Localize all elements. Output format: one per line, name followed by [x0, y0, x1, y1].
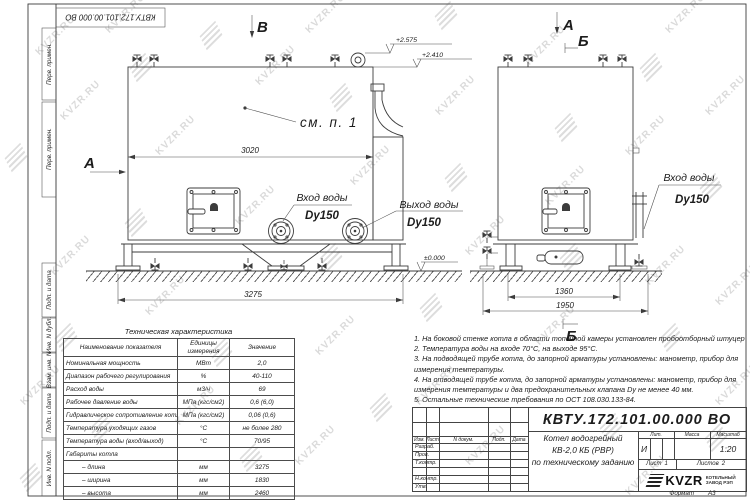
sig-row-label: Т.контр.	[413, 459, 441, 467]
spec-cell: МПа (кгс/см2)	[178, 396, 230, 409]
sheet-label: Лист	[646, 461, 661, 467]
spec-cell: %	[178, 370, 230, 383]
furnace-door-side	[187, 188, 240, 234]
elevation-top: +2.575	[396, 37, 417, 44]
sheets-value: 2	[722, 461, 725, 467]
spec-row: Габариты котла	[64, 448, 295, 461]
sig-row-label: Разраб.	[413, 443, 441, 451]
spec-cell: 2,0	[230, 357, 295, 370]
spec-cell: 0,6 (6,0)	[230, 396, 295, 409]
doc-number-top: КВТУ.172.101.00.000 ВО	[65, 13, 155, 22]
stamp-label: Инв. N подл.	[45, 450, 53, 487]
spec-cell: °С	[178, 422, 230, 435]
note-item: 4. На отводящей трубе котла, до запорной…	[414, 375, 746, 395]
dim-3275: 3275	[244, 290, 262, 299]
boiler-rear-annex	[373, 137, 403, 240]
title-block: КВТУ.172.101.00.000 ВО Изм. Лист N докум…	[412, 407, 747, 492]
stamp-label: Взам. инв. N	[46, 351, 53, 388]
stamp-label: Перв. примен.	[46, 128, 53, 170]
rev-header: N докум.	[439, 436, 488, 443]
company-logo: KVZR КОТЕЛЬНЫЙ ЗАВОД РЭП	[638, 469, 746, 491]
top-port	[351, 53, 365, 67]
spec-cell: Температура воды (вход/выход)	[64, 435, 178, 448]
stamp-label: Подп. и дата	[45, 270, 53, 310]
dim-1360: 1360	[555, 287, 573, 296]
spec-cell	[178, 448, 230, 461]
valve-icon	[331, 55, 340, 67]
spec-cell: 69	[230, 383, 295, 396]
spec-cell: мм	[178, 487, 230, 500]
spec-cell: 0,06 (0,6)	[230, 409, 295, 422]
company-line: ЗАВОД РЭП	[706, 480, 736, 485]
sheet-value: 1	[665, 461, 668, 467]
product-name: Котел водогрейный КВ-2,0 КБ (РВР) по тех…	[528, 431, 638, 469]
callout-label: см. п. 1	[300, 115, 358, 130]
outlet-label: Выход воды	[399, 199, 458, 211]
valve-icon	[599, 55, 608, 67]
spec-header-units: Единицы измерения	[178, 339, 230, 357]
support-frame-side	[116, 244, 408, 270]
spec-cell: – длина	[64, 461, 178, 474]
valve-icon	[133, 55, 142, 67]
kvzr-logo-text: KVZR	[665, 473, 702, 488]
spec-table: Техническая характеристика Наименование …	[63, 327, 294, 500]
format-value: А3	[708, 490, 716, 497]
spec-cell: 3275	[230, 461, 295, 474]
spec-cell: Диапазон рабочего регулирования	[64, 370, 178, 383]
burner-unit	[545, 251, 583, 264]
spec-cell: – ширина	[64, 474, 178, 487]
spec-header-name: Наименование показателя	[64, 339, 178, 357]
lit-value: И	[638, 438, 650, 459]
valve-icon	[618, 55, 627, 67]
dim-1950: 1950	[556, 301, 574, 310]
furnace-door-end	[542, 188, 590, 234]
spec-row: Гидравлическое сопротивление котлаМПа (к…	[64, 409, 295, 422]
drain-valve-icon	[151, 258, 160, 270]
view-label-a-right: А	[562, 17, 574, 34]
valve-icon	[504, 55, 513, 67]
rev-header: Подп.	[488, 436, 510, 443]
inlet-size: Dy150	[305, 210, 339, 222]
outlet-size: Dy150	[407, 217, 441, 229]
spec-cell: м3/ч	[178, 383, 230, 396]
spec-header-row: Наименование показателя Единицы измерени…	[64, 339, 295, 357]
spec-cell: – высота	[64, 487, 178, 500]
elevation-zero: ±0.000	[424, 255, 445, 262]
spec-cell: 70/95	[230, 435, 295, 448]
company-name: КОТЕЛЬНЫЙ ЗАВОД РЭП	[706, 475, 736, 486]
spec-cell: 2460	[230, 487, 295, 500]
scale-header: Масштаб	[710, 431, 746, 438]
spec-row: Температура воды (вход/выход)°С70/95	[64, 435, 295, 448]
inlet-size-end: Dy150	[675, 194, 709, 206]
spec-row: – высотамм2460	[64, 487, 295, 500]
spec-cell: МВт	[178, 357, 230, 370]
spec-cell: Номинальная мощность	[64, 357, 178, 370]
spec-row: Температура уходящих газов°Сне более 280	[64, 422, 295, 435]
sig-row-label: Пров.	[413, 451, 441, 459]
boiler-end-view	[470, 55, 662, 271]
note-item: 5. Остальные технические требования по О…	[414, 395, 746, 405]
inlet-flange	[269, 219, 294, 244]
spec-cell: Рабочее давление воды	[64, 396, 178, 409]
spec-cell: не более 280	[230, 422, 295, 435]
door-handle	[188, 209, 205, 214]
mass-header: Масса	[674, 431, 710, 438]
spec-cell: мм	[178, 461, 230, 474]
inlet-pipe-end	[632, 192, 647, 238]
spec-cell: Габариты котла	[64, 448, 178, 461]
view-label-a-left: А	[83, 155, 95, 172]
support-frame-end	[493, 244, 638, 270]
elevation-mid: +2.410	[422, 52, 443, 59]
drain-valve-icon	[280, 260, 287, 270]
scale-value: 1:20	[710, 438, 746, 459]
door-lock-icon	[210, 203, 218, 211]
spec-cell: мм	[178, 474, 230, 487]
spec-row: Расход водым3/ч69	[64, 383, 295, 396]
sig-row-label: Н.контр.	[413, 475, 441, 483]
flue-elbow	[371, 84, 403, 136]
rev-header: Лист	[426, 436, 439, 443]
spec-row: Диапазон рабочего регулирования%40-110	[64, 370, 295, 383]
spec-table-title: Техническая характеристика	[63, 327, 294, 336]
stamp-label: Подп. и дата	[45, 393, 53, 433]
product-name-line: по техническому заданию	[532, 456, 635, 468]
spec-cell: Гидравлическое сопротивление котла	[64, 409, 178, 422]
boiler-side-view	[86, 53, 462, 271]
technical-notes: 1. На боковой стенке котла в области топ…	[414, 334, 746, 405]
spec-row: – ширинамм1830	[64, 474, 295, 487]
sheet-cell: Лист 1	[638, 459, 676, 469]
stamp-label: Инв. N дубл.	[45, 317, 53, 353]
lit-header: Лит.	[638, 431, 674, 438]
stamp-label: Перв. примен.	[46, 43, 53, 85]
drain-valve-icon	[318, 258, 327, 270]
view-label-v: В	[257, 19, 268, 36]
spec-cell: °С	[178, 435, 230, 448]
rev-header: Изм.	[413, 436, 426, 443]
boiler-body-end	[498, 67, 633, 240]
sig-row-label: Утв.	[413, 483, 441, 491]
end-view-annotations: А Б Вход воды Dy150 1360 1950 Б	[483, 12, 721, 345]
inlet-label-end: Вход воды	[664, 172, 715, 184]
rev-header: Дата	[510, 436, 528, 443]
valve-icon	[150, 55, 159, 67]
door-lock-icon	[562, 203, 570, 211]
door-handle	[543, 209, 557, 214]
spec-row: – длинамм3275	[64, 461, 295, 474]
spec-cell: 40-110	[230, 370, 295, 383]
valve-icon	[266, 55, 275, 67]
section-label-b-top: Б	[578, 33, 589, 50]
valve-icon	[283, 55, 292, 67]
spec-cell: Расход воды	[64, 383, 178, 396]
format-label: Формат	[669, 490, 694, 497]
inlet-label: Вход воды	[297, 192, 348, 204]
drawing-sheet: KVZR.RUKVZR.RUKVZR.RUKVZR.RUKVZR.RUKVZR.…	[0, 0, 750, 500]
spec-cell	[230, 448, 295, 461]
note-item: 3. На подводящей трубе котла, до запорно…	[414, 354, 746, 374]
kvzr-logo-icon	[646, 474, 665, 487]
spec-cell: МПа (кгс/см2)	[178, 409, 230, 422]
format-line: Формат А3	[640, 490, 745, 497]
product-name-line: КВ-2,0 КБ (РВР)	[552, 444, 614, 456]
sheets-cell: Листов 2	[676, 459, 746, 469]
sig-row-label	[413, 467, 441, 475]
spec-row: Номинальная мощностьМВт2,0	[64, 357, 295, 370]
drain-valve-icon	[244, 258, 253, 270]
sheets-label: Листов	[697, 461, 719, 467]
valve-icon	[524, 55, 533, 67]
outlet-flange	[343, 219, 368, 244]
dim-3020: 3020	[241, 146, 259, 155]
spec-cell: Температура уходящих газов	[64, 422, 178, 435]
note-item: 1. На боковой стенке котла в области топ…	[414, 334, 746, 344]
spec-cell: 1830	[230, 474, 295, 487]
spec-header-value: Значение	[230, 339, 295, 357]
spec-row: Рабочее давление водыМПа (кгс/см2)0,6 (6…	[64, 396, 295, 409]
title-doc-number: КВТУ.172.101.00.000 ВО	[528, 408, 746, 431]
product-name-line: Котел водогрейный	[544, 432, 623, 444]
note-item: 2. Температура воды на входе 70°С, на вы…	[414, 344, 746, 354]
